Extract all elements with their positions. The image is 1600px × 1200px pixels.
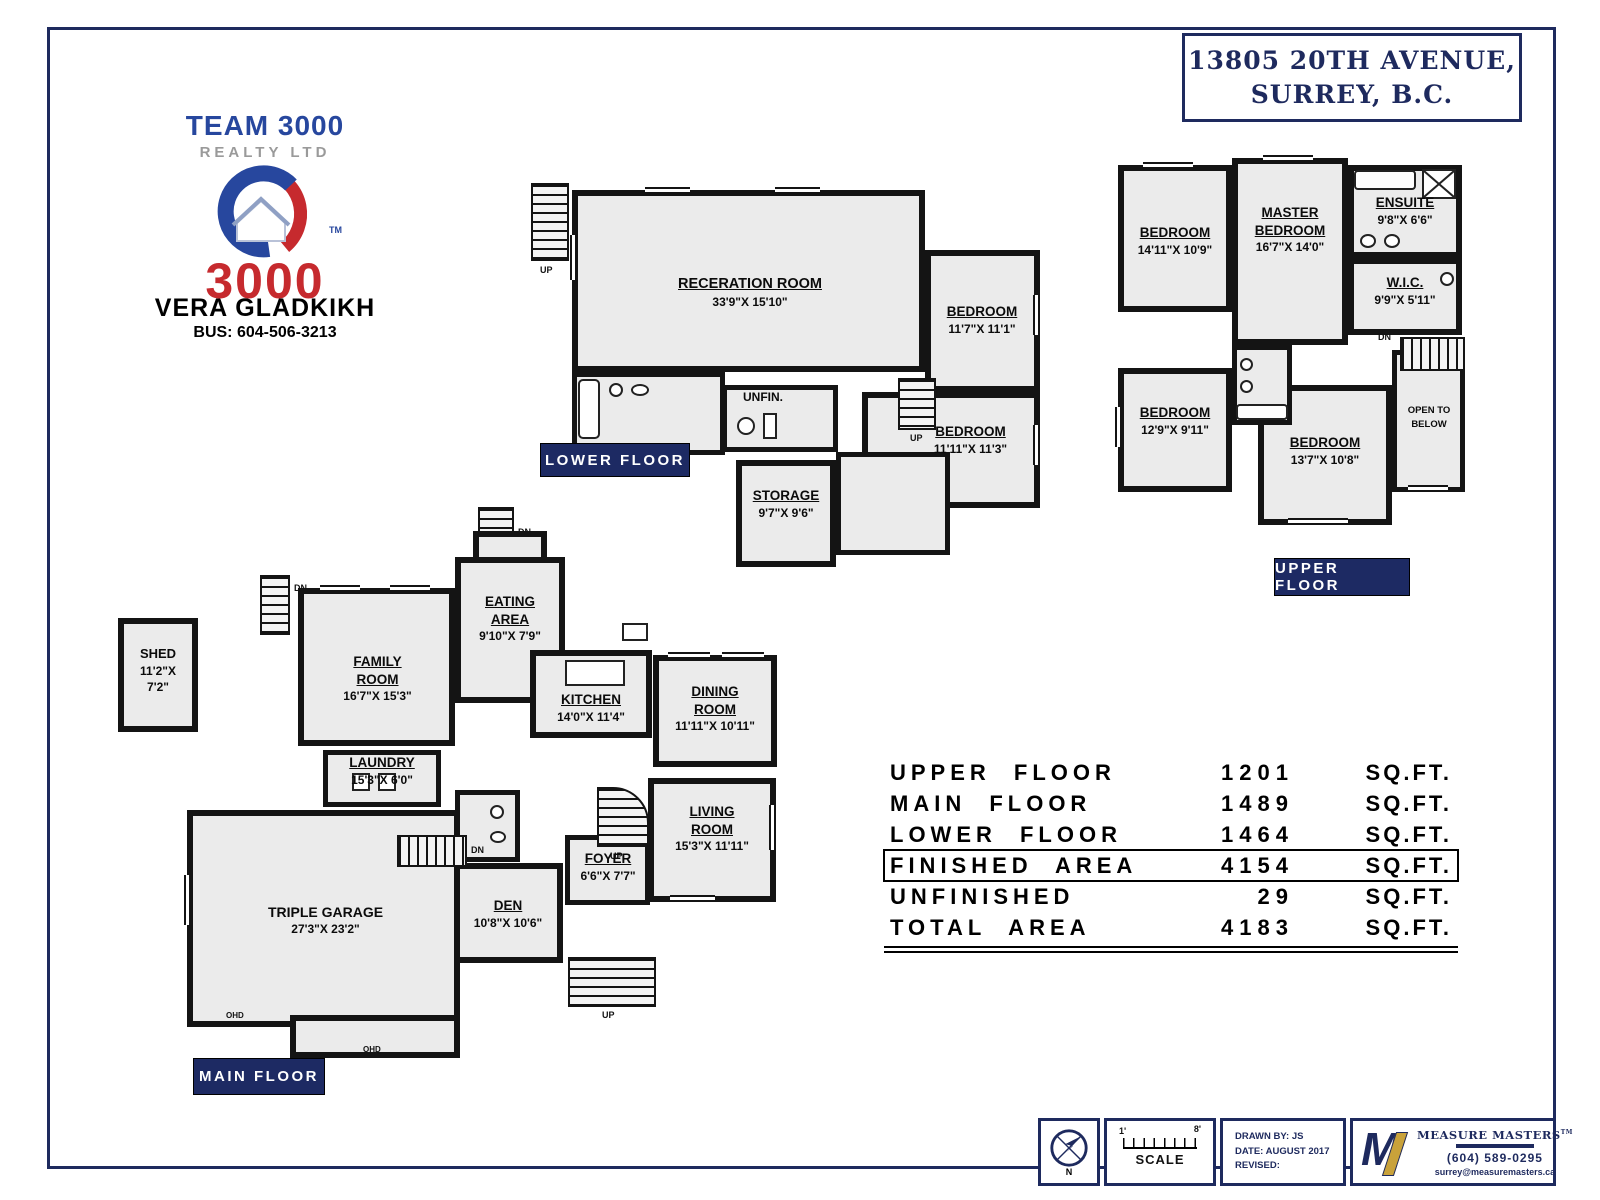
up-label: UP (602, 1010, 615, 1020)
measure-masters-tagline-bar (1456, 1144, 1534, 1148)
date-text: DATE: AUGUST 2017 (1235, 1145, 1343, 1160)
address-line2: SURREY, B.C. (1251, 78, 1454, 112)
compass-n-label: N (1066, 1167, 1073, 1177)
main-floor-plan: DN DN DN UP UP FAMILY ROOM 16'7"X 15'3" … (110, 505, 782, 1075)
main-floor-tag: MAIN FLOOR (193, 1058, 325, 1095)
area-row-unfinished: UNFINISHED 29 SQ.FT. (884, 881, 1458, 912)
window (1288, 518, 1348, 525)
room-label-wic: W.I.C. 9'9"X 5'11" (1352, 274, 1458, 308)
window (645, 187, 690, 194)
house-swoosh-icon: TM (170, 163, 360, 259)
window (775, 187, 820, 194)
brand-realty-text: REALTY LTD (170, 144, 360, 161)
scale-ruler-icon: 1' 8' (1123, 1138, 1197, 1149)
revised-text: REVISED: (1235, 1159, 1343, 1174)
scale-box: 1' 8' SCALE (1104, 1118, 1216, 1186)
toilet-icon (609, 383, 623, 397)
window (722, 652, 764, 659)
window (1263, 155, 1313, 162)
drawn-by-text: DRAWN BY: JS (1235, 1130, 1343, 1145)
room-label-family: FAMILY ROOM 16'7"X 15'3" (305, 653, 450, 705)
measure-masters-box: M MEASURE MASTERSTM (604) 589-0295 surre… (1350, 1118, 1556, 1186)
kitchen-island-icon (565, 660, 625, 686)
room-label-bedroom-bc: BEDROOM 13'7"X 10'8" (1263, 434, 1387, 468)
stove-icon (622, 623, 648, 641)
dn-label: DN (471, 845, 484, 855)
dryer-icon (763, 413, 777, 439)
dn-label: DN (1378, 332, 1391, 342)
room-label-eating: EATING AREA 9'10"X 7'9" (460, 593, 560, 645)
room-label-recreation: RECERATION ROOM 33'9"X 15'10" (635, 275, 865, 310)
room-label-open-below: OPEN TO BELOW (1396, 404, 1462, 433)
table-underline (884, 946, 1458, 948)
bathtub-icon (578, 379, 600, 439)
area-row-main: MAIN FLOOR 1489 SQ.FT. (884, 788, 1458, 819)
address-line1: 13805 20TH AVENUE, (1188, 44, 1516, 78)
table-underline (884, 951, 1458, 953)
sink-icon (1240, 380, 1253, 393)
stairs-icon (531, 183, 569, 261)
room-label-den: DEN 10'8"X 10'6" (460, 897, 556, 931)
room-label-dining: DINING ROOM 11'11"X 10'11" (658, 683, 772, 735)
room-label-master: MASTER BEDROOM 16'7"X 14'0" (1236, 204, 1344, 256)
bathtub-icon (1354, 170, 1416, 190)
room-hall-lower (836, 452, 950, 555)
room-label-shed: SHED 11'2"X 7'2" (120, 646, 196, 696)
room-label-laundry: LAUNDRY 15'3"X 6'0" (328, 754, 436, 788)
up-label: UP (540, 265, 553, 275)
porch-steps-icon (568, 957, 656, 1007)
address-box: 13805 20TH AVENUE, SURREY, B.C. (1182, 33, 1522, 122)
room-label-bedroom-tl: BEDROOM 14'11"X 10'9" (1122, 224, 1228, 258)
window (320, 585, 360, 592)
sink-icon (490, 831, 506, 843)
room-label-bedroom1-lower: BEDROOM 11'7"X 11'1" (927, 303, 1037, 337)
area-row-upper: UPPER FLOOR 1201 SQ.FT. (884, 757, 1458, 788)
upper-floor-tag: UPPER FLOOR (1274, 558, 1410, 596)
measure-masters-phone: (604) 589-0295 (1417, 1151, 1573, 1165)
trademark-text: TM (329, 225, 342, 235)
window (1033, 425, 1040, 465)
window (1143, 162, 1193, 169)
toilet-icon (490, 805, 504, 819)
room-label-foyer: FOYER 6'6"X 7'7" (558, 850, 658, 884)
window (1115, 407, 1122, 447)
upper-floor-plan: DN BEDROOM 14'11"X 10'9" MASTER BEDROOM … (1108, 152, 1470, 552)
room-label-bedroom-ml: BEDROOM 12'9"X 9'11" (1122, 404, 1228, 438)
room-label-living: LIVING ROOM 15'3"X 11'11" (653, 803, 771, 855)
area-row-lower: LOWER FLOOR 1464 SQ.FT. (884, 819, 1458, 850)
agent-name: VERA GLADKIKH (115, 294, 415, 323)
scale-label: SCALE (1135, 1152, 1184, 1167)
stairs-icon (397, 835, 467, 867)
area-row-finished: FINISHED AREA 4154 SQ.FT. (884, 850, 1458, 881)
brand-team-text: TEAM 3000 (170, 110, 360, 142)
window (184, 875, 191, 925)
measure-masters-logo-icon: M (1359, 1126, 1417, 1178)
area-summary-table: UPPER FLOOR 1201 SQ.FT. MAIN FLOOR 1489 … (884, 757, 1458, 953)
drawn-by-box: DRAWN BY: JS DATE: AUGUST 2017 REVISED: (1220, 1118, 1346, 1186)
room-label-kitchen: KITCHEN 14'0"X 11'4" (535, 691, 647, 725)
window (570, 235, 577, 280)
room-label-bedroom2-lower: BEDROOM 11'11"X 11'3" (908, 423, 1033, 457)
window (670, 895, 715, 902)
sink-icon (1384, 234, 1400, 248)
window (390, 585, 430, 592)
washer-icon (737, 417, 755, 435)
window (1408, 485, 1448, 492)
stairs-icon (1400, 337, 1465, 371)
toilet-icon (1240, 358, 1253, 371)
window (668, 652, 710, 659)
ohd-label: OHD (226, 1011, 244, 1020)
stairs-icon (597, 787, 649, 847)
room-label-unfinished: UNFIN. (725, 390, 801, 406)
agent-phone: BUS: 604-506-3213 (115, 324, 415, 342)
sink-icon (1360, 234, 1376, 248)
compass-box: N (1038, 1118, 1100, 1186)
lower-floor-tag: LOWER FLOOR (540, 443, 690, 477)
floor-plan-page: { "address": { "line1": "13805 20TH AVEN… (0, 0, 1600, 1200)
measure-masters-name: MEASURE MASTERSTM (1417, 1128, 1573, 1142)
area-row-total: TOTAL AREA 4183 SQ.FT. (884, 912, 1458, 943)
room-label-garage: TRIPLE GARAGE 27'3"X 23'2" (248, 903, 403, 938)
sink-icon (631, 384, 649, 396)
stairs-icon (260, 575, 290, 635)
compass-icon (1048, 1127, 1090, 1169)
team3000-logo: TEAM 3000 REALTY LTD TM 3000 (170, 110, 360, 304)
bathtub-icon (1236, 404, 1288, 420)
measure-masters-email: surrey@measuremasters.ca (1417, 1167, 1573, 1177)
ohd-label: OHD (363, 1045, 381, 1054)
room-label-ensuite: ENSUITE 9'8"X 6'6" (1352, 194, 1458, 228)
